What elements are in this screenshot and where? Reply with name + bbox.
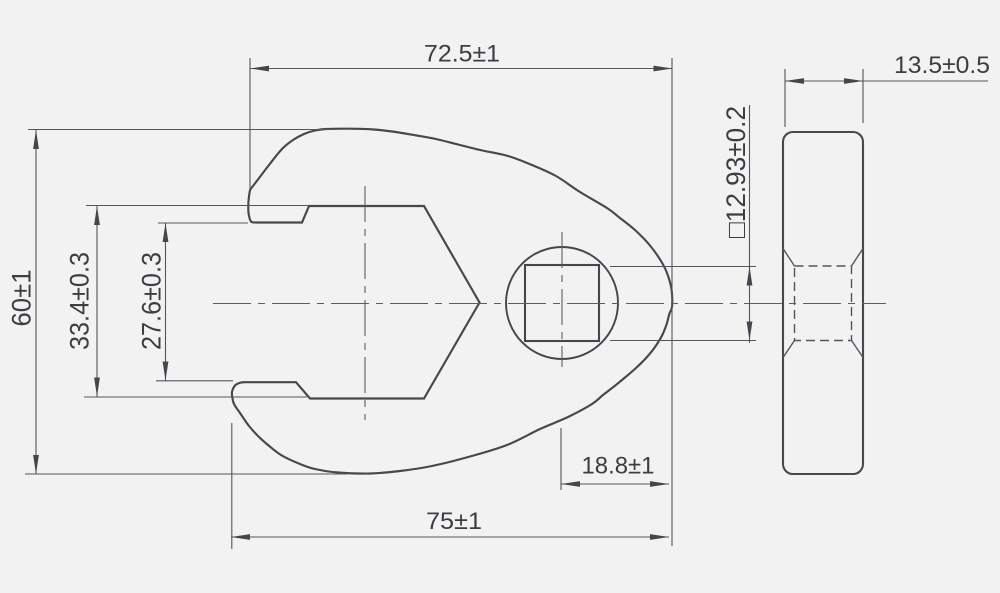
svg-text:60±1: 60±1 [7, 270, 37, 327]
svg-text:18.8±1: 18.8±1 [582, 453, 655, 480]
svg-text:33.4±0.3: 33.4±0.3 [65, 252, 95, 350]
svg-text:13.5±0.5: 13.5±0.5 [894, 52, 990, 79]
svg-text:□12.93±0.2: □12.93±0.2 [721, 106, 751, 238]
svg-text:75±1: 75±1 [426, 508, 482, 535]
svg-text:72.5±1: 72.5±1 [424, 41, 500, 68]
svg-text:27.6±0.3: 27.6±0.3 [137, 252, 167, 350]
